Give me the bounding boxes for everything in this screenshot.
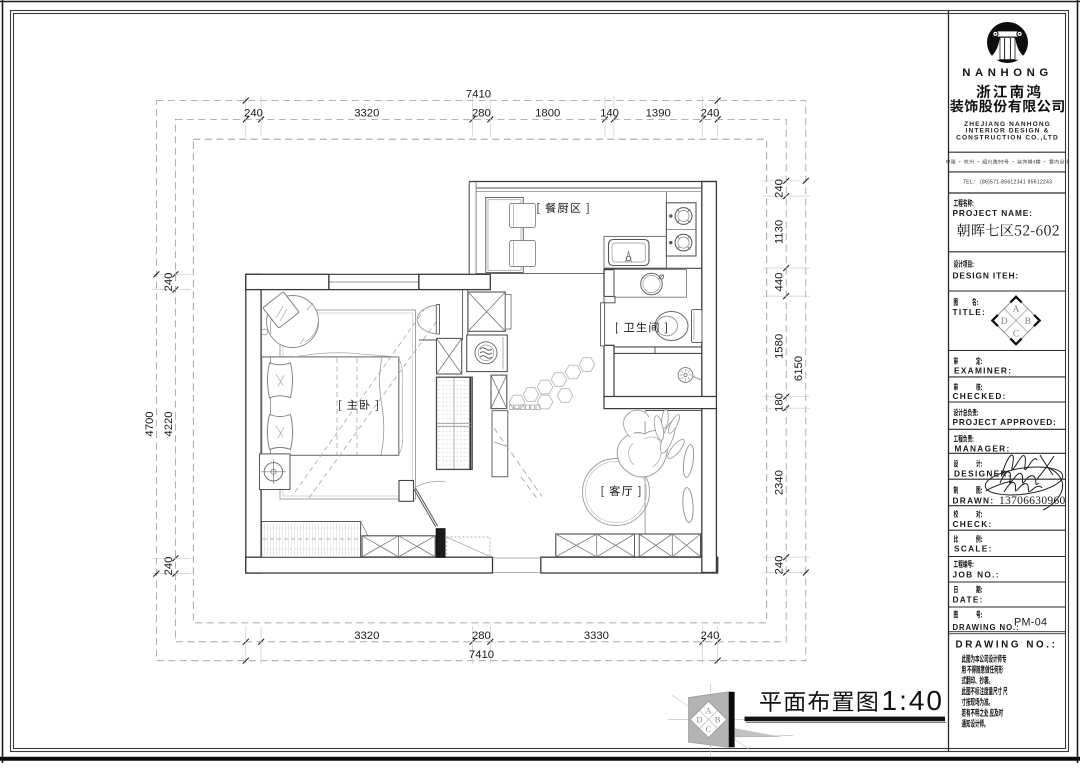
svg-text:280: 280 — [472, 107, 491, 119]
svg-text:PROJECT APPROVED:: PROJECT APPROVED: — [953, 417, 1057, 427]
svg-text:TITLE:: TITLE: — [953, 307, 987, 317]
svg-text:140: 140 — [600, 107, 619, 119]
svg-text:DRAWN:: DRAWN: — [953, 495, 995, 505]
svg-text:3320: 3320 — [354, 630, 379, 642]
svg-text:3330: 3330 — [584, 630, 609, 642]
svg-text:440: 440 — [774, 273, 786, 292]
svg-text:7410: 7410 — [466, 89, 491, 101]
svg-text:DATE:: DATE: — [953, 595, 984, 605]
svg-text:7410: 7410 — [469, 649, 494, 661]
svg-text:6150: 6150 — [793, 356, 805, 381]
svg-text:EXAMINER:: EXAMINER: — [954, 366, 1012, 376]
svg-text:DRAWING NO.:: DRAWING NO.: — [953, 623, 1020, 632]
svg-text:240: 240 — [701, 107, 720, 119]
svg-text:3320: 3320 — [354, 107, 379, 119]
svg-text:1800: 1800 — [535, 107, 560, 119]
svg-text:PROJECT NAME:: PROJECT NAME: — [953, 208, 1033, 218]
svg-text:NANHONG: NANHONG — [962, 67, 1053, 79]
svg-text:240: 240 — [774, 179, 786, 198]
svg-text:280: 280 — [472, 630, 491, 642]
svg-text:240: 240 — [244, 107, 263, 119]
svg-text:1390: 1390 — [646, 107, 671, 119]
svg-text:TEL： (86)571-85612341 85612: TEL： (86)571-85612341 85612243 — [963, 179, 1052, 185]
svg-text:240: 240 — [774, 556, 786, 575]
svg-text:CHECKED:: CHECKED: — [953, 391, 1007, 401]
svg-text:D: D — [1001, 317, 1008, 327]
svg-text:13706630960: 13706630960 — [999, 495, 1066, 507]
svg-text:240: 240 — [701, 630, 720, 642]
svg-text:1130: 1130 — [774, 220, 786, 244]
svg-text:DRAWING NO.:: DRAWING NO.: — [956, 639, 1058, 650]
svg-text:A: A — [705, 705, 712, 715]
svg-text:2340: 2340 — [774, 470, 786, 495]
svg-text:240: 240 — [163, 273, 175, 292]
svg-text:CONSTRUCTION CO.,LTD: CONSTRUCTION CO.,LTD — [956, 134, 1059, 141]
svg-text:B: B — [1025, 317, 1031, 327]
svg-text:240: 240 — [163, 557, 175, 576]
svg-text:D: D — [696, 715, 702, 725]
svg-text:4220: 4220 — [163, 411, 175, 436]
svg-text:A: A — [1013, 305, 1020, 315]
svg-text:DESIGN ITEH:: DESIGN ITEH: — [953, 271, 1020, 281]
svg-text:1:40: 1:40 — [882, 685, 945, 716]
svg-text:C: C — [706, 724, 712, 734]
svg-text:MANAGER:: MANAGER: — [955, 444, 1011, 454]
svg-text:1580: 1580 — [774, 334, 786, 359]
svg-text:C: C — [1013, 329, 1019, 339]
svg-text:SCALE:: SCALE: — [954, 544, 993, 554]
svg-text:4700: 4700 — [144, 411, 156, 436]
svg-text:180: 180 — [774, 393, 786, 412]
svg-text:CHECK:: CHECK: — [953, 519, 993, 529]
svg-text:PM-04: PM-04 — [1014, 617, 1047, 629]
svg-text:B: B — [715, 715, 721, 725]
svg-text:JOB NO.:: JOB NO.: — [953, 569, 1000, 579]
